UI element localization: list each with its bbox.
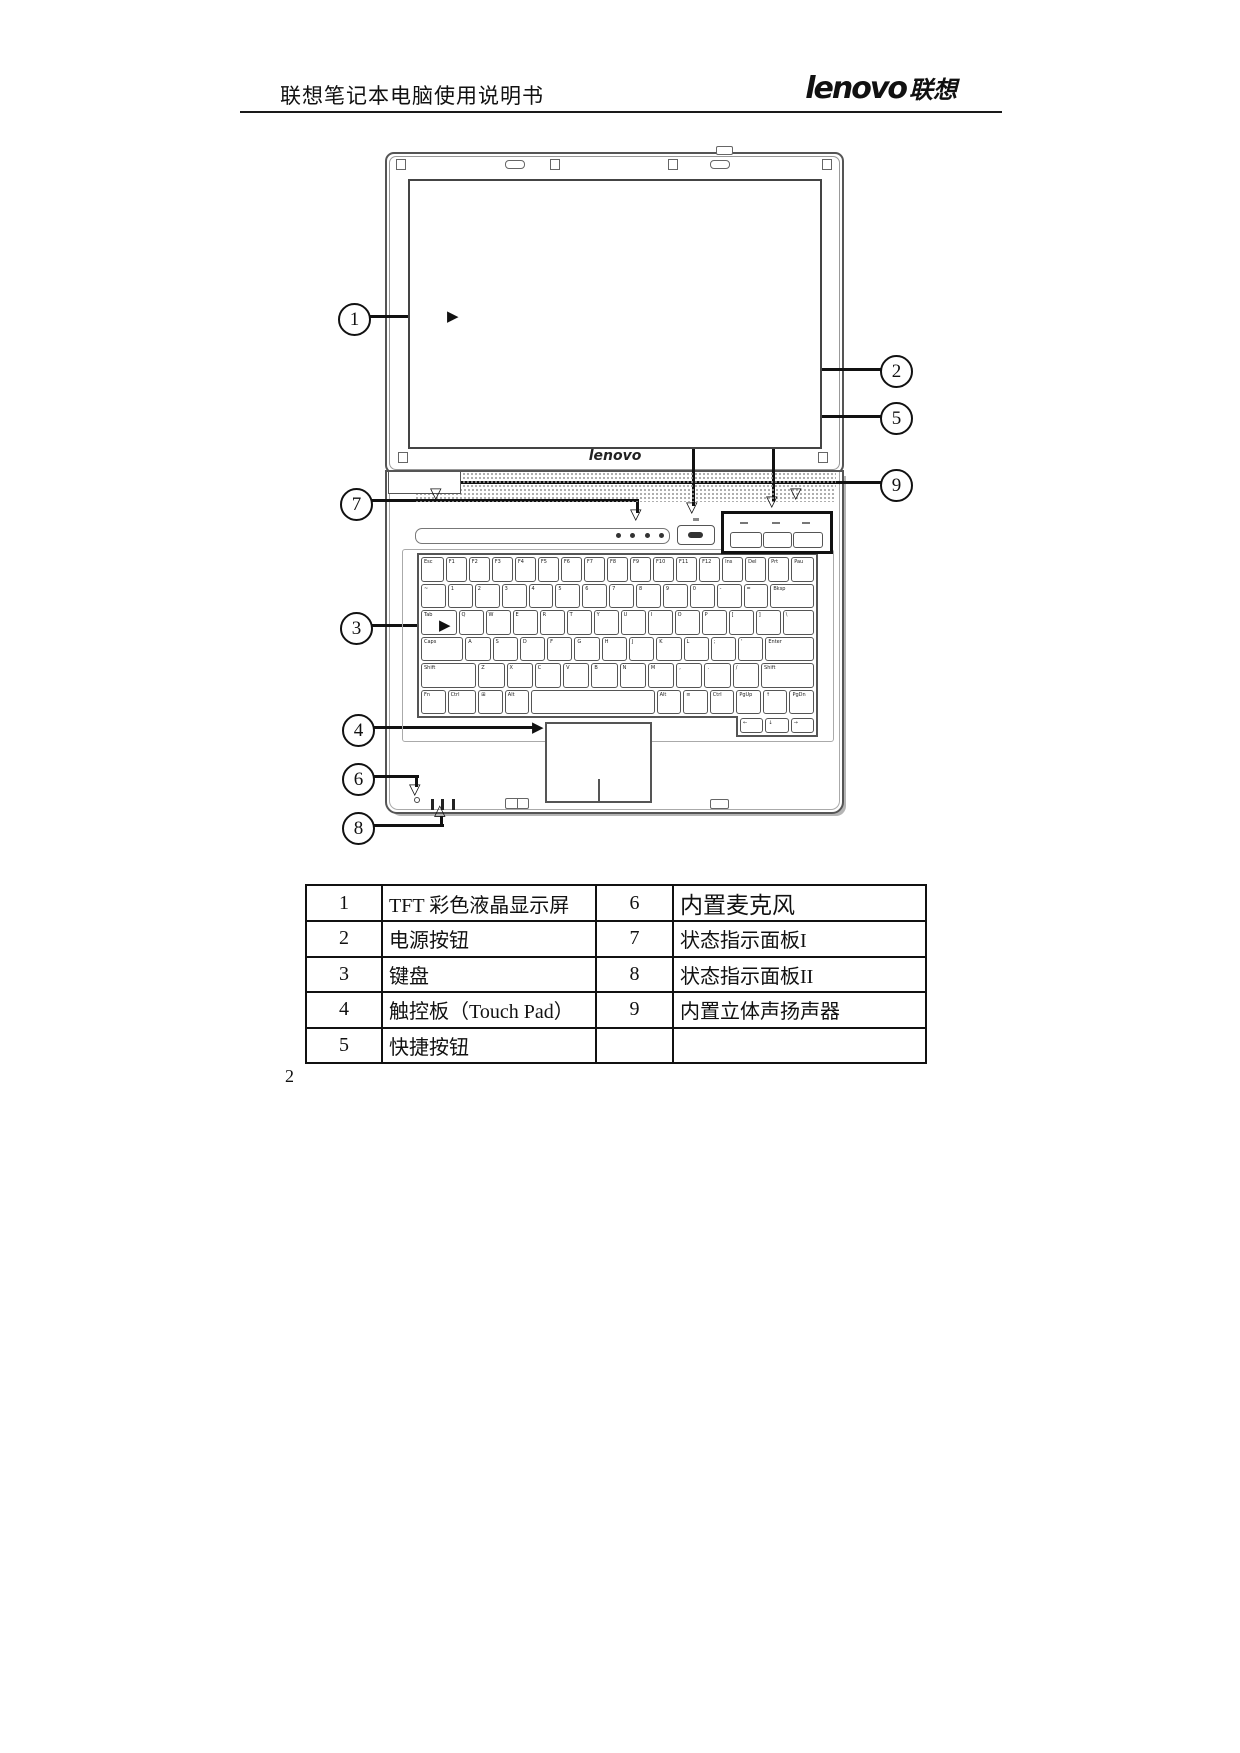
legend-label: 内置立体声扬声器 [673,992,926,1028]
table-row: 2 电源按钮 7 状态指示面板I [306,921,926,957]
keyboard-key: Del [745,557,766,582]
legend-label: TFT 彩色液晶显示屏 [382,885,596,921]
keyboard-key: O [675,610,700,635]
callout-8: 8 [342,812,375,845]
bezel-slot [505,160,525,169]
legend-num: 7 [596,921,673,957]
callout-4: 4 [342,714,375,747]
keyboard-key: 0 [690,584,715,609]
callout-6-line [372,775,419,778]
keyboard-key: F3 [492,557,513,582]
legend-label: 状态指示面板I [673,921,926,957]
keyboard-key: Pau [791,557,814,582]
quick-button [763,532,792,548]
legend-label: 内置麦克风 [673,885,926,921]
bezel-mark [396,159,406,170]
keyboard-key: Shift [761,663,814,688]
keyboard-key: ↑ [763,690,788,715]
callout-7: 7 [340,488,373,521]
keyboard-key: 9 [663,584,688,609]
status-led [659,533,664,538]
keyboard-key: 1 [448,584,473,609]
legend-num: 5 [306,1028,382,1064]
bezel-slot [710,160,730,169]
keyboard-key: ← [740,718,763,733]
keyboard-key: K [656,637,681,662]
keyboard-key: F6 [561,557,582,582]
keyboard-key: F [547,637,572,662]
left-hinge [388,471,461,494]
arrowhead-down-icon: ▽ [630,507,642,522]
keyboard-key: X [507,663,533,688]
callout-3: 3 [340,612,373,645]
keyboard-key: Q [459,610,484,635]
bezel-mark [818,452,828,463]
legend-label: 快捷按钮 [382,1028,596,1064]
callout-9: 9 [880,469,913,502]
keyboard-key: F7 [584,557,605,582]
legend-label: 电源按钮 [382,921,596,957]
arrowhead-down-icon: ▽ [766,494,778,509]
keyboard-key: F2 [469,557,490,582]
touchpad-buttons [545,779,652,803]
keyboard-key: W [486,610,511,635]
keyboard-key: PgUp [736,690,761,715]
callout-5: 5 [880,402,913,435]
keyboard-key: A [465,637,490,662]
doc-title: 联想笔记本电脑使用说明书 [280,80,544,110]
keyboard-arrow-cluster: ←↓→ [736,716,818,737]
quick-button [793,532,823,548]
keyboard: EscF1F2F3F4F5F6F7F8F9F10F11F12InsDelPrtP… [417,553,818,718]
keyboard-key: 8 [636,584,661,609]
keyboard-key: H [602,637,627,662]
legend-num: 8 [596,957,673,993]
keyboard-key: 2 [475,584,500,609]
legend-num: 4 [306,992,382,1028]
keyboard-key: Alt [657,690,682,715]
lenovo-logo-text: lenovo [805,71,906,106]
keyboard-key: R [540,610,565,635]
keyboard-key: ' [738,637,763,662]
keyboard-key [531,690,654,715]
keyboard-key: S [493,637,518,662]
keyboard-key: T [567,610,592,635]
keyboard-key: F9 [630,557,651,582]
keyboard-key: F12 [699,557,720,582]
keyboard-key: N [620,663,646,688]
keyboard-keys: EscF1F2F3F4F5F6F7F8F9F10F11F12InsDelPrtP… [421,557,814,714]
keyboard-key: E [513,610,538,635]
keyboard-key: , [676,663,702,688]
callout-2: 2 [880,355,913,388]
keyboard-key: Ctrl [448,690,477,715]
touchpad [545,722,652,783]
callout-8-line [372,824,444,827]
keyboard-key: Shift [421,663,476,688]
front-slot [505,798,529,809]
keyboard-key: ↓ [765,718,788,733]
keyboard-key: / [733,663,759,688]
callout-1: 1 [338,303,371,336]
keyboard-key: Alt [505,690,530,715]
keyboard-key: \ [783,610,814,635]
table-row: 1 TFT 彩色液晶显示屏 6 内置麦克风 [306,885,926,921]
keyboard-key: 7 [609,584,634,609]
tft-screen [408,179,822,449]
page-number: 2 [285,1066,294,1087]
legend-num: 3 [306,957,382,993]
keyboard-key: 6 [582,584,607,609]
screen-bezel-logo: lenovo [557,448,673,464]
lid-latch [716,146,733,155]
keyboard-key: Ins [722,557,743,582]
arrowhead-down-icon: ▽ [430,486,442,501]
keyboard-key: ~ [421,584,446,609]
arrowhead-up-icon: △ [434,803,446,818]
power-symbol [693,518,699,521]
keyboard-key: Enter [765,637,814,662]
keyboard-key: - [717,584,742,609]
quick-button-symbol [740,522,748,524]
arrowhead-down-icon: ▽ [686,500,698,515]
bezel-mark [668,159,678,170]
lenovo-logo: lenovo联想 [772,70,957,106]
keyboard-key: F4 [515,557,536,582]
keyboard-key: P [702,610,727,635]
status-led [630,533,635,538]
keyboard-key: V [563,663,589,688]
arrowhead-right-icon: ▶ [439,618,451,633]
lenovo-logo-cn: 联想 [909,76,957,104]
keyboard-key: Z [478,663,504,688]
legend-num: 6 [596,885,673,921]
keyboard-key: F8 [607,557,628,582]
table-row: 5 快捷按钮 [306,1028,926,1064]
keyboard-key: . [704,663,730,688]
keyboard-key: D [520,637,545,662]
keyboard-key: B [591,663,617,688]
quick-button-symbol [772,522,780,524]
touchpad-left-button [547,779,600,801]
arrowhead-down-icon: ▽ [790,486,802,501]
keyboard-key: F1 [446,557,467,582]
legend-label: 触控板（Touch Pad） [382,992,596,1028]
keyboard-key: U [621,610,646,635]
touchpad-right-button [600,779,651,801]
speaker-grille [458,472,836,487]
keyboard-key: F11 [676,557,697,582]
legend-table: 1 TFT 彩色液晶显示屏 6 内置麦克风 2 电源按钮 7 状态指示面板I 3… [305,884,927,1064]
keyboard-key: L [684,637,709,662]
keyboard-key: Prt [768,557,789,582]
keyboard-key: F10 [653,557,674,582]
arrowhead-down-icon: ▽ [409,782,421,797]
legend-label: 状态指示面板II [673,957,926,993]
keyboard-key: Bksp [770,584,814,609]
status-panel-2-led [452,799,455,810]
legend-label: 键盘 [382,957,596,993]
keyboard-key: ] [756,610,781,635]
power-button [677,525,715,545]
bezel-mark [398,452,408,463]
legend-num: 2 [306,921,382,957]
keyboard-key: 5 [555,584,580,609]
keyboard-key: Fn [421,690,446,715]
keyboard-key: Caps [421,637,463,662]
keyboard-key: ≡ [683,690,708,715]
keyboard-key: I [648,610,673,635]
keyboard-key: F5 [538,557,559,582]
table-row: 4 触控板（Touch Pad） 9 内置立体声扬声器 [306,992,926,1028]
bezel-mark [550,159,560,170]
keyboard-key: G [574,637,599,662]
keyboard-key: J [629,637,654,662]
quick-buttons-group [721,511,833,554]
status-led [645,533,650,538]
legend-num [596,1028,673,1064]
quick-button-symbol [802,522,810,524]
manual-page: 联想笔记本电脑使用说明书 lenovo联想 lenovo [0,0,1240,1753]
keyboard-key: Esc [421,557,444,582]
keyboard-key: 4 [529,584,554,609]
table-row: 3 键盘 8 状态指示面板II [306,957,926,993]
legend-num: 9 [596,992,673,1028]
bezel-mark [822,159,832,170]
keyboard-key: → [791,718,814,733]
keyboard-key: 3 [502,584,527,609]
keyboard-key: Y [594,610,619,635]
keyboard-key: ⊞ [478,690,503,715]
callout-6: 6 [342,763,375,796]
status-led [616,533,621,538]
keyboard-key: Ctrl [710,690,735,715]
keyboard-key: M [648,663,674,688]
legend-label [673,1028,926,1064]
keyboard-key: ; [711,637,736,662]
header-rule [240,111,1002,113]
legend-num: 1 [306,885,382,921]
keyboard-key: C [535,663,561,688]
arrowhead-right-icon: ▶ [447,309,459,324]
quick-button [730,532,762,548]
keyboard-key: [ [729,610,754,635]
front-slot [710,799,729,809]
keyboard-key: = [744,584,769,609]
keyboard-key: PgDn [789,690,814,715]
arrowhead-right-icon: ▶ [532,720,544,735]
